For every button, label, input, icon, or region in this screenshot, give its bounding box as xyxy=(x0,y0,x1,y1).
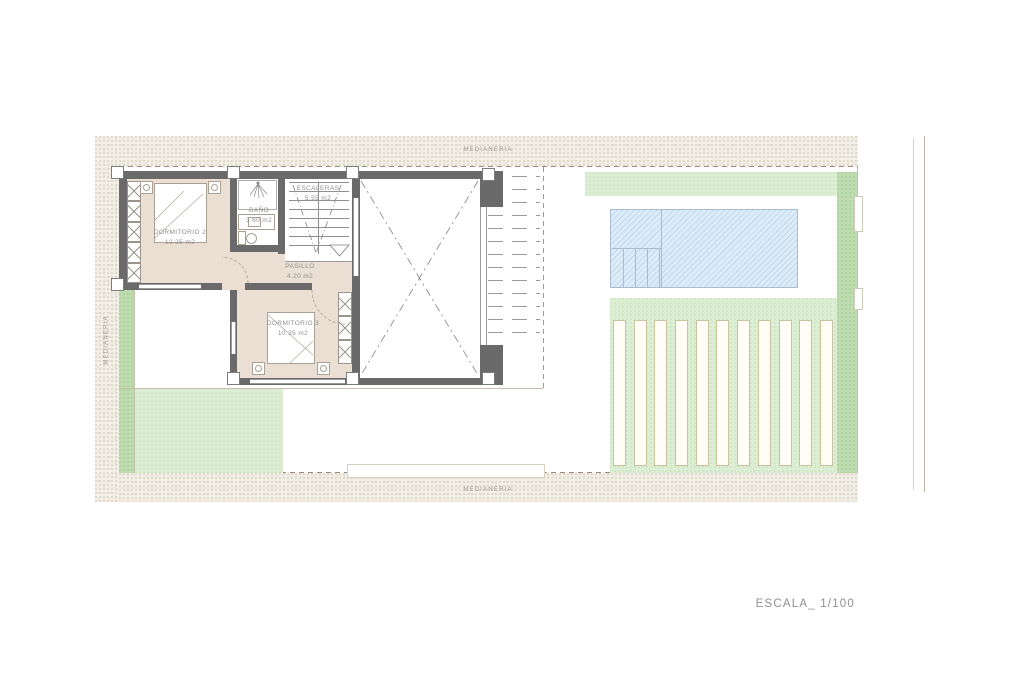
pillar xyxy=(482,372,495,385)
toilet-bowl xyxy=(246,233,257,244)
hedge-left-strip xyxy=(119,289,135,473)
room-name: PASILLO xyxy=(260,262,340,272)
room-name: BAÑO xyxy=(230,206,288,216)
ground-floor-outline xyxy=(119,388,543,389)
pergola-slat xyxy=(820,320,833,466)
pillar xyxy=(111,278,124,291)
pergola-slat xyxy=(654,320,667,466)
wall-dormitorio3-top xyxy=(245,283,312,290)
medianera-label-left: MEDIANERIA xyxy=(95,290,119,390)
wall-top xyxy=(119,171,503,179)
wardrobe-cell xyxy=(127,263,141,283)
window-wall-void-right xyxy=(480,207,487,345)
room-name: DORMITORIO 3 xyxy=(243,319,343,329)
pillar xyxy=(346,372,359,385)
street-edge-line-inner xyxy=(913,138,914,490)
wall-bano-bottom xyxy=(230,245,285,252)
fence-gate-upper xyxy=(854,196,863,232)
pergola-slat xyxy=(613,320,626,466)
window-dormitorio2-bottom xyxy=(139,284,201,289)
room-area: 4.20 m2 xyxy=(260,272,340,282)
hedge-top-right xyxy=(585,172,837,196)
pillar xyxy=(346,166,359,179)
double-height-void-cross xyxy=(361,181,478,375)
wardrobe-cell xyxy=(127,181,141,201)
room-label-bano: BAÑO 3.60 m2 xyxy=(230,206,288,226)
window-void-left xyxy=(353,198,359,276)
dormitorio3-door-floor xyxy=(312,283,352,290)
room-label-pasillo: PASILLO 4.20 m2 xyxy=(260,262,340,282)
pergola-slat xyxy=(634,320,647,466)
room-label-dormitorio3: DORMITORIO 3 10.35 m2 xyxy=(243,319,343,339)
toilet-tank xyxy=(238,231,246,245)
street-edge-line-outer xyxy=(924,136,925,492)
pillar xyxy=(227,166,240,179)
plan-linework xyxy=(0,0,1024,682)
lamp xyxy=(320,365,327,372)
lamp xyxy=(211,184,218,191)
scale-label: ESCALA_ 1/100 xyxy=(655,598,855,610)
room-label-escaleras: ESCALERAS 5.55 m2 xyxy=(282,184,354,204)
wardrobe-cell xyxy=(338,340,352,364)
window-dormitorio3-bottom xyxy=(250,379,345,384)
pool-steps xyxy=(612,248,661,287)
pergola-slat xyxy=(737,320,750,466)
pergola-slat xyxy=(799,320,812,466)
wall-left xyxy=(119,171,127,290)
wardrobe-cell xyxy=(338,292,352,316)
pergola-slats xyxy=(613,320,833,466)
room-label-dormitorio2: DORMITORIO 2 12.25 m2 xyxy=(130,228,230,248)
entrance-gate-notch xyxy=(347,464,545,478)
pool-divider xyxy=(661,210,662,287)
window-dormitorio3-left xyxy=(231,322,236,354)
pergola-slat xyxy=(675,320,688,466)
room-name: ESCALERAS xyxy=(282,184,354,194)
pergola-slat xyxy=(779,320,792,466)
wardrobe-cell xyxy=(127,201,141,221)
room-area: 12.25 m2 xyxy=(130,238,230,248)
medianera-label-top: MEDIANERIA xyxy=(398,147,578,153)
pillar xyxy=(482,168,495,181)
pergola-slat xyxy=(716,320,729,466)
fence-gate-lower xyxy=(854,288,863,310)
dormitorio2-door-floor xyxy=(222,283,245,290)
pergola-slat xyxy=(758,320,771,466)
lamp xyxy=(143,184,150,191)
pillar xyxy=(227,372,240,385)
room-area: 10.35 m2 xyxy=(243,329,343,339)
room-name: DORMITORIO 2 xyxy=(130,228,230,238)
swimming-pool xyxy=(610,209,798,288)
lamp xyxy=(255,365,262,372)
pergola-slat xyxy=(696,320,709,466)
medianera-label-bottom: MEDIANERIA xyxy=(398,487,578,493)
canopy-dash-edge xyxy=(543,167,544,390)
pillar xyxy=(111,166,124,179)
lawn-bottom-left xyxy=(135,388,283,473)
room-area: 3.60 m2 xyxy=(230,216,288,226)
floor-plan-canvas: MEDIANERIA MEDIANERIA MEDIANERIA xyxy=(0,0,1024,682)
room-area: 5.55 m2 xyxy=(282,194,354,204)
